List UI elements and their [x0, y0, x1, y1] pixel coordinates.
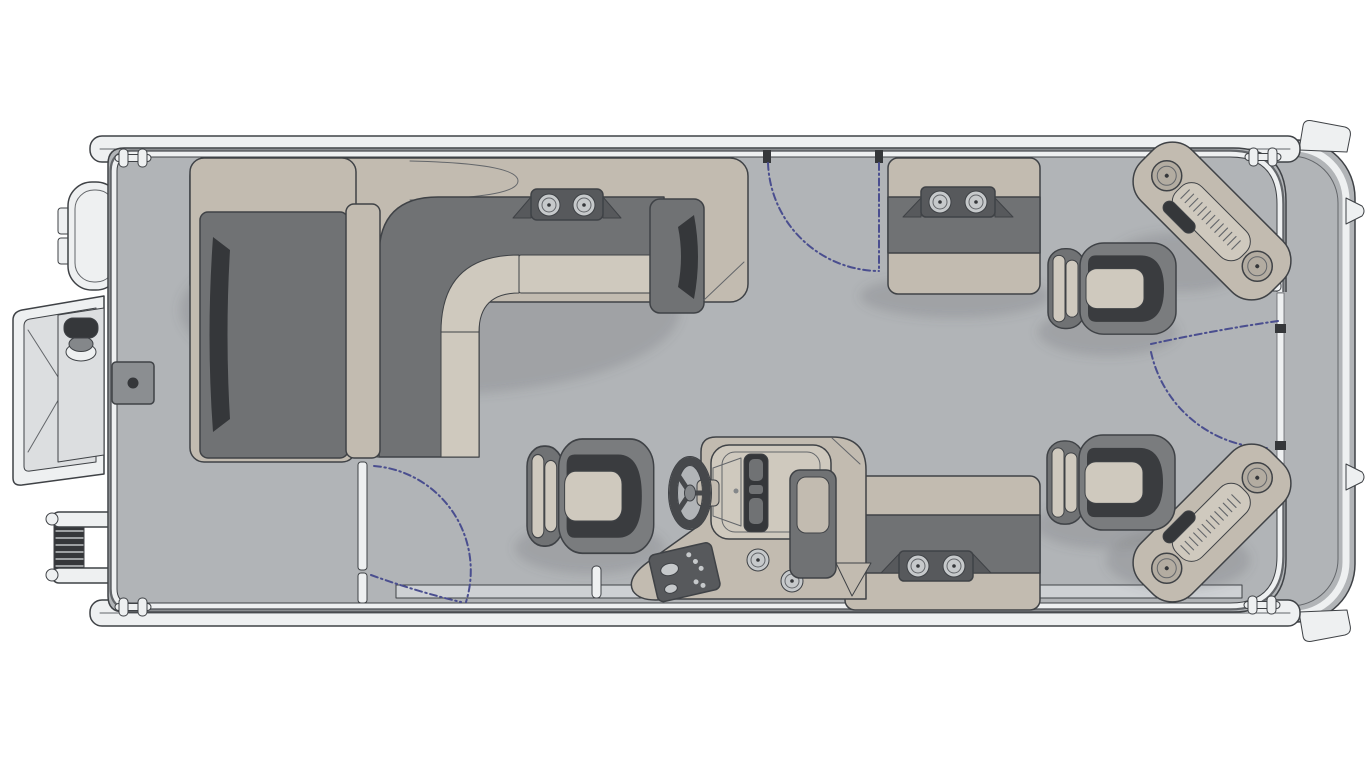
deck-hatch: [112, 362, 154, 404]
floorplan-svg: [0, 0, 1366, 768]
aft-bench-starboard: [845, 476, 1040, 610]
instrument-cluster: [744, 454, 768, 532]
captain-chair: [527, 439, 654, 553]
bow-fin-bottom: [1299, 610, 1350, 641]
chaise-backrest-strip: [346, 204, 380, 458]
bow-bench-starboard: [888, 158, 1040, 294]
lounge-seat-front-left: [441, 330, 479, 457]
lounge-seat-front-top: [519, 255, 664, 293]
fishing-seat-bow: [1048, 243, 1176, 334]
port-gate-hinge-leaf: [358, 573, 367, 603]
port-gate-open-leaf: [358, 462, 367, 570]
cup-holder: [929, 191, 951, 213]
cup-holder: [907, 555, 929, 577]
fishing-seat-aft: [1047, 435, 1175, 530]
chaise-lounge-port: [200, 204, 380, 458]
cup-holder: [573, 194, 595, 216]
cup-holder: [965, 191, 987, 213]
cup-holder: [943, 555, 965, 577]
cup-holder: [538, 194, 560, 216]
swim-platform: [13, 296, 104, 485]
starboard-gate-hinge: [875, 150, 883, 163]
pontoon-floorplan-diagram: [0, 0, 1366, 768]
starboard-gate-post: [763, 150, 771, 163]
port-gate-latch-post: [592, 566, 601, 598]
bow-fin-top: [1299, 121, 1350, 152]
console-cup-holder: [747, 549, 769, 571]
